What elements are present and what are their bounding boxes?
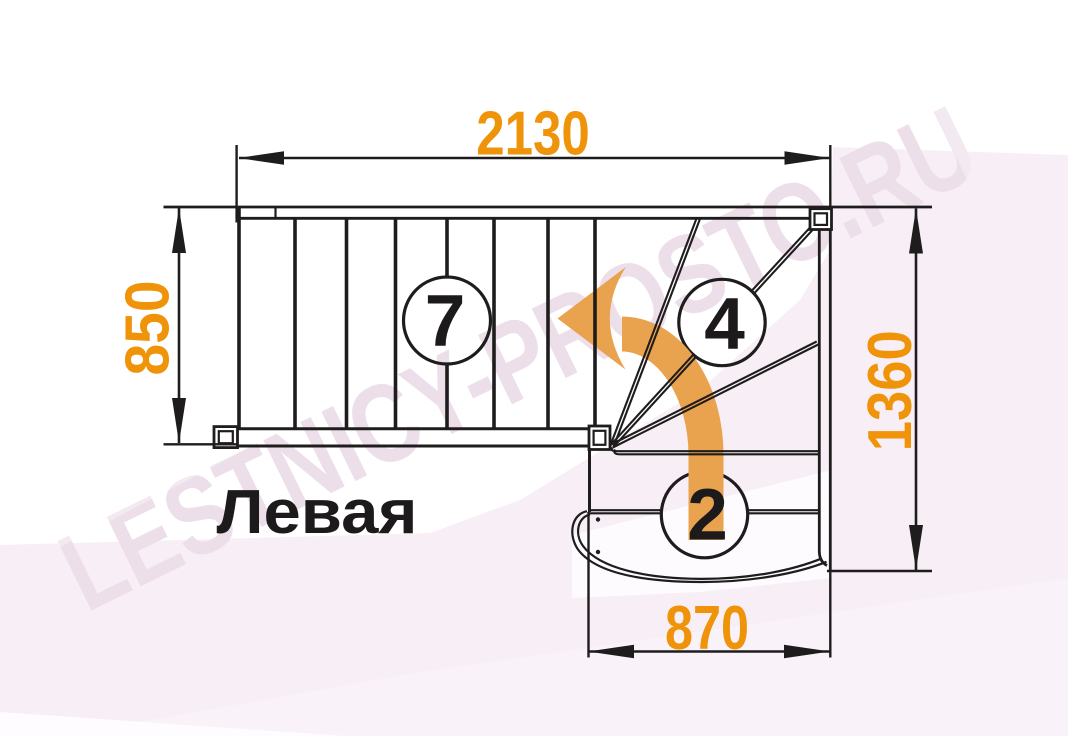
- svg-text:7: 7: [425, 280, 466, 361]
- svg-text:850: 850: [114, 281, 183, 376]
- svg-text:2: 2: [687, 474, 728, 555]
- svg-text:1360: 1360: [856, 330, 925, 451]
- svg-text:2130: 2130: [476, 100, 590, 169]
- svg-text:Левая: Левая: [217, 478, 418, 547]
- svg-text:870: 870: [665, 594, 749, 663]
- svg-text:4: 4: [704, 284, 745, 365]
